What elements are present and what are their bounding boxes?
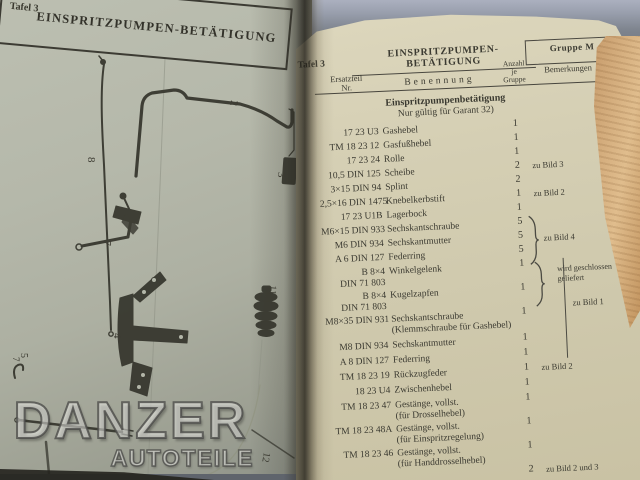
parts-diagram: 8 2 3 7 7 5 4 11 12 6 (0, 0, 312, 474)
brace-bild4 (527, 215, 541, 265)
brace-bild1-label: zu Bild 1 (572, 297, 604, 308)
lower-lever-part (15, 418, 133, 474)
cable-part (99, 56, 113, 336)
column-header-remarks: Bemerkungen (532, 63, 604, 75)
small-hook-part (14, 365, 23, 378)
callout-8: 8 (85, 157, 97, 163)
mounting-bracket-part (118, 272, 188, 396)
brace-geschlossen-label: wird geschlossen geliefert (557, 262, 613, 283)
callout-4: 4 (111, 333, 123, 339)
section-heading: Einspritzpumpenbetätigung Nur gültig für… (315, 89, 576, 124)
rod-12-part (252, 430, 294, 458)
callout-3: 3 (275, 172, 287, 178)
callout-5: 5 (18, 353, 29, 358)
right-page-content: Tafel 3 EINSPRITZPUMPEN-BETÄTIGUNG Grupp… (312, 16, 633, 480)
callout-12: 12 (259, 451, 272, 463)
book-photo-scene: 8 2 3 7 7 5 4 11 12 6 Tafel 3 EINSPRITZP… (0, 0, 640, 480)
brace-geschlossen (533, 261, 547, 307)
callout-7: 7 (100, 240, 112, 247)
callout-2: 2 (227, 100, 240, 107)
column-header-nr: Ersatzteil Nr. (316, 73, 377, 94)
throttle-rod-part (136, 90, 292, 176)
callout-11: 11 (266, 285, 278, 296)
parts-table-body: 17 23 U3Gashebel1 TM 18 23 12Gasfußhebel… (317, 116, 633, 480)
column-header-name: Benennung (380, 75, 498, 89)
left-book-page: 8 2 3 7 7 5 4 11 12 6 Tafel 3 EINSPRITZP… (0, 0, 312, 474)
right-book-page: Tafel 3 EINSPRITZPUMPEN-BETÄTIGUNG Grupp… (296, 12, 640, 480)
left-page-title: EINSPRITZPUMPEN-BETÄTIGUNG (30, 9, 282, 47)
right-plate-label: Tafel 3 (297, 59, 325, 70)
fold-crease-line (148, 58, 165, 474)
brace-bild4-label: zu Bild 4 (543, 232, 575, 243)
column-header-qty: Anzahl je Gruppe (494, 59, 535, 85)
